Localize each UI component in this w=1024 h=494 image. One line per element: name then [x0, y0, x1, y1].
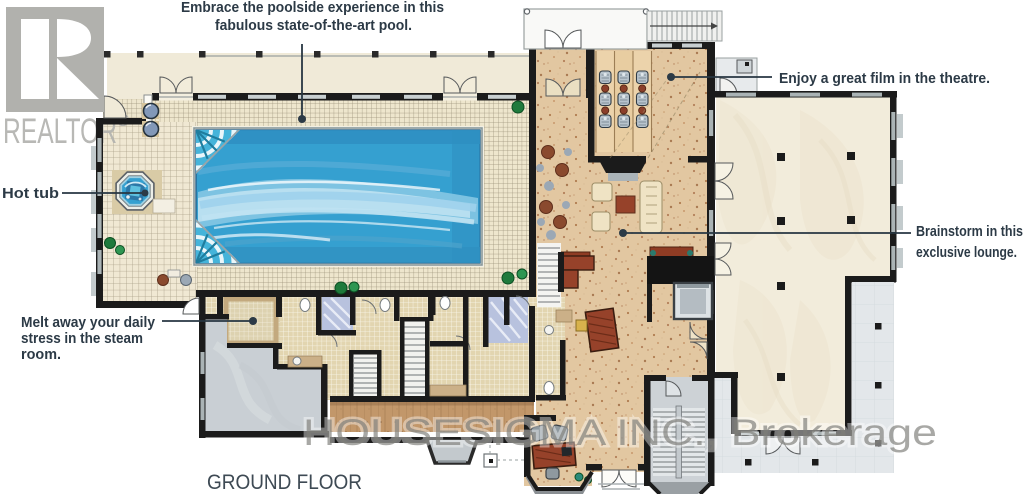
svg-text:exclusive lounge.: exclusive lounge. — [916, 244, 1017, 261]
svg-text:fabulous state-of-the-art pool: fabulous state-of-the-art pool. — [215, 17, 412, 34]
svg-text:Enjoy a great film in the thea: Enjoy a great film in the theatre. — [779, 70, 990, 87]
svg-text:stress in the steam: stress in the steam — [21, 330, 143, 347]
svg-text:room.: room. — [21, 346, 61, 363]
svg-text:Brainstorm in this: Brainstorm in this — [916, 223, 1023, 240]
svg-text:Melt away your daily: Melt away your daily — [21, 314, 156, 331]
svg-text:Embrace the poolside experienc: Embrace the poolside experience in this — [181, 0, 444, 16]
svg-text:Hot tub: Hot tub — [2, 185, 59, 202]
svg-text:HOUSESIGMA INC., Brokerage: HOUSESIGMA INC., Brokerage — [303, 412, 937, 453]
svg-text:GROUND FLOOR: GROUND FLOOR — [207, 471, 362, 494]
